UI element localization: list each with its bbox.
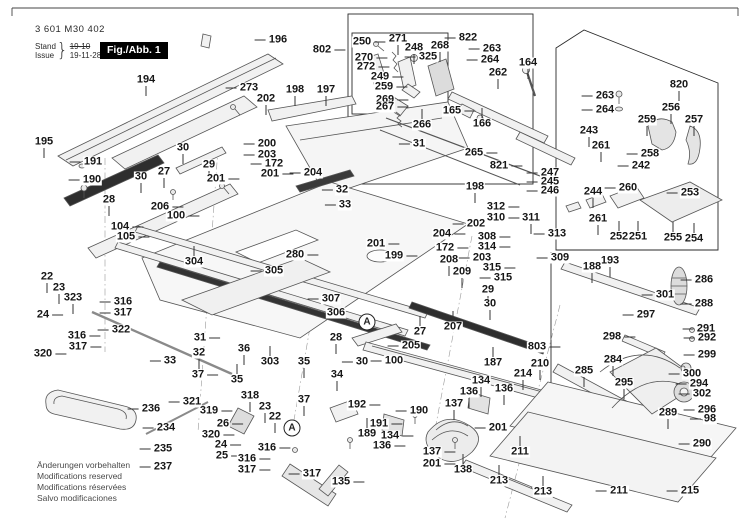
part-label: 209 <box>452 267 472 278</box>
part-label: 30 <box>355 357 369 368</box>
part-label: 295 <box>614 378 634 389</box>
part-label: 284 <box>603 355 623 366</box>
part-label: 27 <box>413 327 427 338</box>
part-label: 37 <box>297 395 311 406</box>
part-label: 266 <box>412 120 432 131</box>
footer-line: Änderungen vorbehalten <box>37 460 130 471</box>
part-label: 305 <box>264 266 284 277</box>
part-label: 100 <box>384 356 404 367</box>
part-label: 256 <box>661 103 681 114</box>
part-label: 286 <box>694 275 714 286</box>
part-label: 135 <box>331 477 351 488</box>
part-label: 188 <box>582 262 602 273</box>
part-label: 299 <box>697 350 717 361</box>
part-label: 25 <box>215 451 229 462</box>
part-label: 236 <box>141 404 161 415</box>
footer-line: Modifications reserved <box>37 471 130 482</box>
part-label: 201 <box>488 423 508 434</box>
part-label: 317 <box>113 308 133 319</box>
part-label: 297 <box>636 310 656 321</box>
part-label: 33 <box>163 356 177 367</box>
part-label: 261 <box>591 141 611 152</box>
part-label: 313 <box>547 229 567 240</box>
part-label: 316 <box>257 443 277 454</box>
part-label: 189 <box>357 429 377 440</box>
part-label: 30 <box>176 143 190 154</box>
part-label: 280 <box>285 250 305 261</box>
part-label: 204 <box>303 168 323 179</box>
part-label: 258 <box>640 149 660 160</box>
figure-title-box: Fig./Abb. 1 <box>100 42 168 59</box>
part-label: 33 <box>338 200 352 211</box>
part-label: 27 <box>157 167 171 178</box>
part-label: 242 <box>631 161 651 172</box>
part-label: 195 <box>34 137 54 148</box>
part-label: 201 <box>422 459 442 470</box>
part-label: 264 <box>480 55 500 66</box>
part-label: 172 <box>435 243 455 254</box>
footer-notice: Änderungen vorbehaltenModifications rese… <box>37 460 130 504</box>
part-label: 264 <box>595 105 615 116</box>
part-label: 317 <box>237 465 257 476</box>
part-label: 288 <box>694 299 714 310</box>
part-label: 164 <box>518 58 538 69</box>
part-label: 803 <box>527 342 547 353</box>
part-label: 302 <box>692 389 712 400</box>
part-label: 30 <box>134 172 148 183</box>
part-label: 246 <box>540 186 560 197</box>
part-label: 237 <box>153 462 173 473</box>
part-label: 29 <box>481 285 495 296</box>
part-label: 259 <box>637 115 657 126</box>
part-label: 197 <box>316 85 336 96</box>
part-label: 255 <box>663 233 683 244</box>
part-label: 31 <box>193 333 207 344</box>
part-label: 253 <box>680 188 700 199</box>
part-label: 35 <box>297 357 311 368</box>
part-label: 309 <box>550 253 570 264</box>
part-label: 265 <box>464 148 484 159</box>
part-label: 285 <box>574 366 594 377</box>
revision-stamp: Stand Issue } 19-10 19-11-28 <box>35 41 105 61</box>
part-label: 325 <box>418 52 438 63</box>
part-label: 303 <box>260 357 280 368</box>
part-label: 34 <box>330 370 344 381</box>
part-label: 243 <box>579 126 599 137</box>
parts-diagram-page: 1968022502712482688222632641648201942733… <box>0 0 750 530</box>
part-label: 289 <box>658 408 678 419</box>
detail-marker-a: A <box>284 420 301 437</box>
part-number: 3 601 M30 402 <box>35 24 105 35</box>
part-label: 136 <box>372 441 392 452</box>
part-label: 198 <box>285 85 305 96</box>
part-label: 28 <box>102 195 116 206</box>
part-label: 292 <box>697 333 717 344</box>
part-label: 165 <box>442 106 462 117</box>
part-label: 166 <box>472 119 492 130</box>
part-label: 36 <box>237 344 251 355</box>
stand-value: 19-10 <box>70 42 101 51</box>
part-label: 201 <box>260 169 280 180</box>
part-label: 320 <box>33 349 53 360</box>
part-label: 35 <box>230 375 244 386</box>
part-label: 138 <box>453 465 473 476</box>
part-label: 214 <box>513 369 533 380</box>
part-label: 198 <box>465 182 485 193</box>
part-label: 136 <box>494 384 514 395</box>
part-label: 137 <box>444 399 464 410</box>
part-label: 267 <box>375 102 395 113</box>
part-label: 202 <box>256 94 276 105</box>
part-label: 802 <box>312 45 332 56</box>
part-label: 204 <box>432 229 452 240</box>
issue-label: Issue <box>35 51 56 60</box>
part-label: 187 <box>483 358 503 369</box>
part-label: 822 <box>458 33 478 44</box>
part-label: 298 <box>602 332 622 343</box>
part-label: 261 <box>588 214 608 225</box>
part-label: 22 <box>268 412 282 423</box>
part-label: 202 <box>466 219 486 230</box>
part-label: 30 <box>483 299 497 310</box>
part-labels-layer: 1968022502712482688222632641648201942733… <box>0 0 750 530</box>
part-label: 254 <box>684 234 704 245</box>
part-label: 211 <box>609 486 629 497</box>
part-label: 310 <box>486 213 506 224</box>
part-label: 262 <box>488 68 508 79</box>
part-label: 235 <box>153 444 173 455</box>
part-label: 207 <box>443 322 463 333</box>
part-label: 201 <box>366 239 386 250</box>
footer-line: Salvo modificaciones <box>37 493 130 504</box>
part-label: 191 <box>83 157 103 168</box>
part-label: 318 <box>240 391 260 402</box>
brace-glyph: } <box>57 40 68 62</box>
part-label: 192 <box>347 400 367 411</box>
part-label: 37 <box>191 370 205 381</box>
part-label: 252 <box>609 232 629 243</box>
part-label: 98 <box>703 414 717 425</box>
part-label: 821 <box>489 161 509 172</box>
part-label: 259 <box>374 82 394 93</box>
part-label: 304 <box>184 257 204 268</box>
part-label: 250 <box>352 37 372 48</box>
part-label: 136 <box>459 387 479 398</box>
stand-label: Stand <box>35 42 56 51</box>
part-label: 205 <box>401 341 421 352</box>
part-label: 290 <box>692 439 712 450</box>
part-label: 323 <box>63 293 83 304</box>
part-label: 319 <box>199 406 219 417</box>
part-label: 213 <box>533 487 553 498</box>
part-label: 100 <box>166 211 186 222</box>
part-label: 215 <box>680 486 700 497</box>
part-label: 263 <box>595 91 615 102</box>
part-label: 301 <box>655 290 675 301</box>
part-label: 260 <box>618 183 638 194</box>
title-block: 3 601 M30 402 Stand Issue } 19-10 19-11-… <box>35 24 105 61</box>
part-label: 311 <box>521 213 541 224</box>
part-label: 211 <box>510 447 530 458</box>
part-label: 306 <box>326 308 346 319</box>
part-label: 234 <box>156 423 176 434</box>
part-label: 317 <box>68 342 88 353</box>
part-label: 24 <box>36 310 50 321</box>
part-label: 105 <box>116 232 136 243</box>
part-label: 820 <box>669 80 689 91</box>
part-label: 190 <box>82 175 102 186</box>
footer-line: Modifications réservées <box>37 482 130 493</box>
part-label: 196 <box>268 35 288 46</box>
part-label: 251 <box>628 232 648 243</box>
part-label: 28 <box>329 333 343 344</box>
part-label: 213 <box>489 476 509 487</box>
part-label: 190 <box>409 406 429 417</box>
part-label: 208 <box>439 255 459 266</box>
part-label: 137 <box>422 447 442 458</box>
part-label: 317 <box>302 469 322 480</box>
part-label: 32 <box>335 185 349 196</box>
part-label: 199 <box>384 251 404 262</box>
part-label: 201 <box>206 174 226 185</box>
part-label: 315 <box>493 273 513 284</box>
part-label: 194 <box>136 75 156 86</box>
issue-value: 19-11-28 <box>70 51 101 60</box>
part-label: 193 <box>600 256 620 267</box>
detail-marker-a: A <box>359 314 376 331</box>
part-label: 244 <box>583 187 603 198</box>
part-label: 32 <box>192 348 206 359</box>
part-label: 307 <box>321 294 341 305</box>
part-label: 29 <box>202 160 216 171</box>
part-label: 257 <box>684 115 704 126</box>
part-label: 31 <box>412 139 426 150</box>
part-label: 322 <box>111 325 131 336</box>
